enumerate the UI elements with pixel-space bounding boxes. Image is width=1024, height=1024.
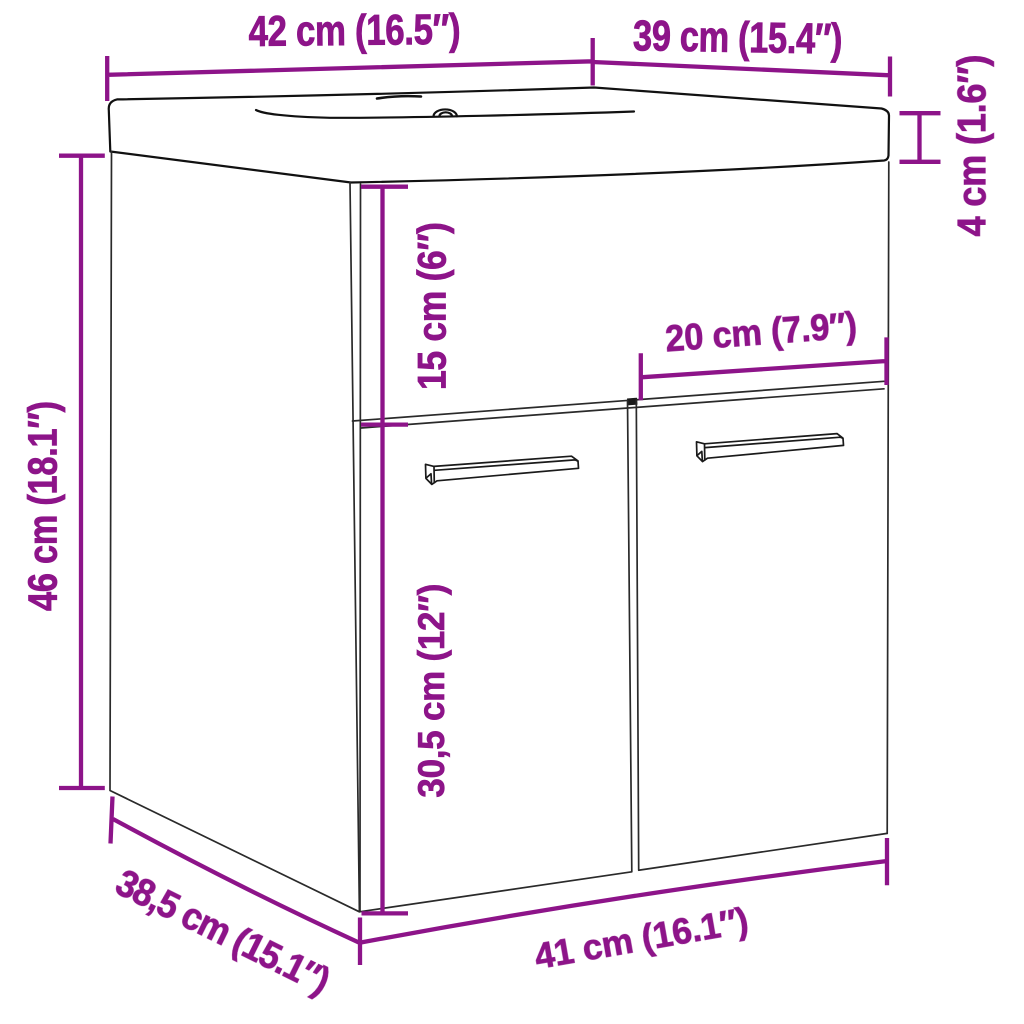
svg-text:4 cm (1.6″): 4 cm (1.6″) (950, 54, 995, 236)
svg-text:39 cm (15.4″): 39 cm (15.4″) (633, 13, 843, 64)
svg-text:15 cm (6″): 15 cm (6″) (410, 222, 454, 390)
svg-text:30,5 cm (12″): 30,5 cm (12″) (411, 584, 452, 798)
svg-text:42 cm (16.5″): 42 cm (16.5″) (248, 6, 460, 55)
svg-text:46 cm (18.1″): 46 cm (18.1″) (20, 401, 65, 611)
